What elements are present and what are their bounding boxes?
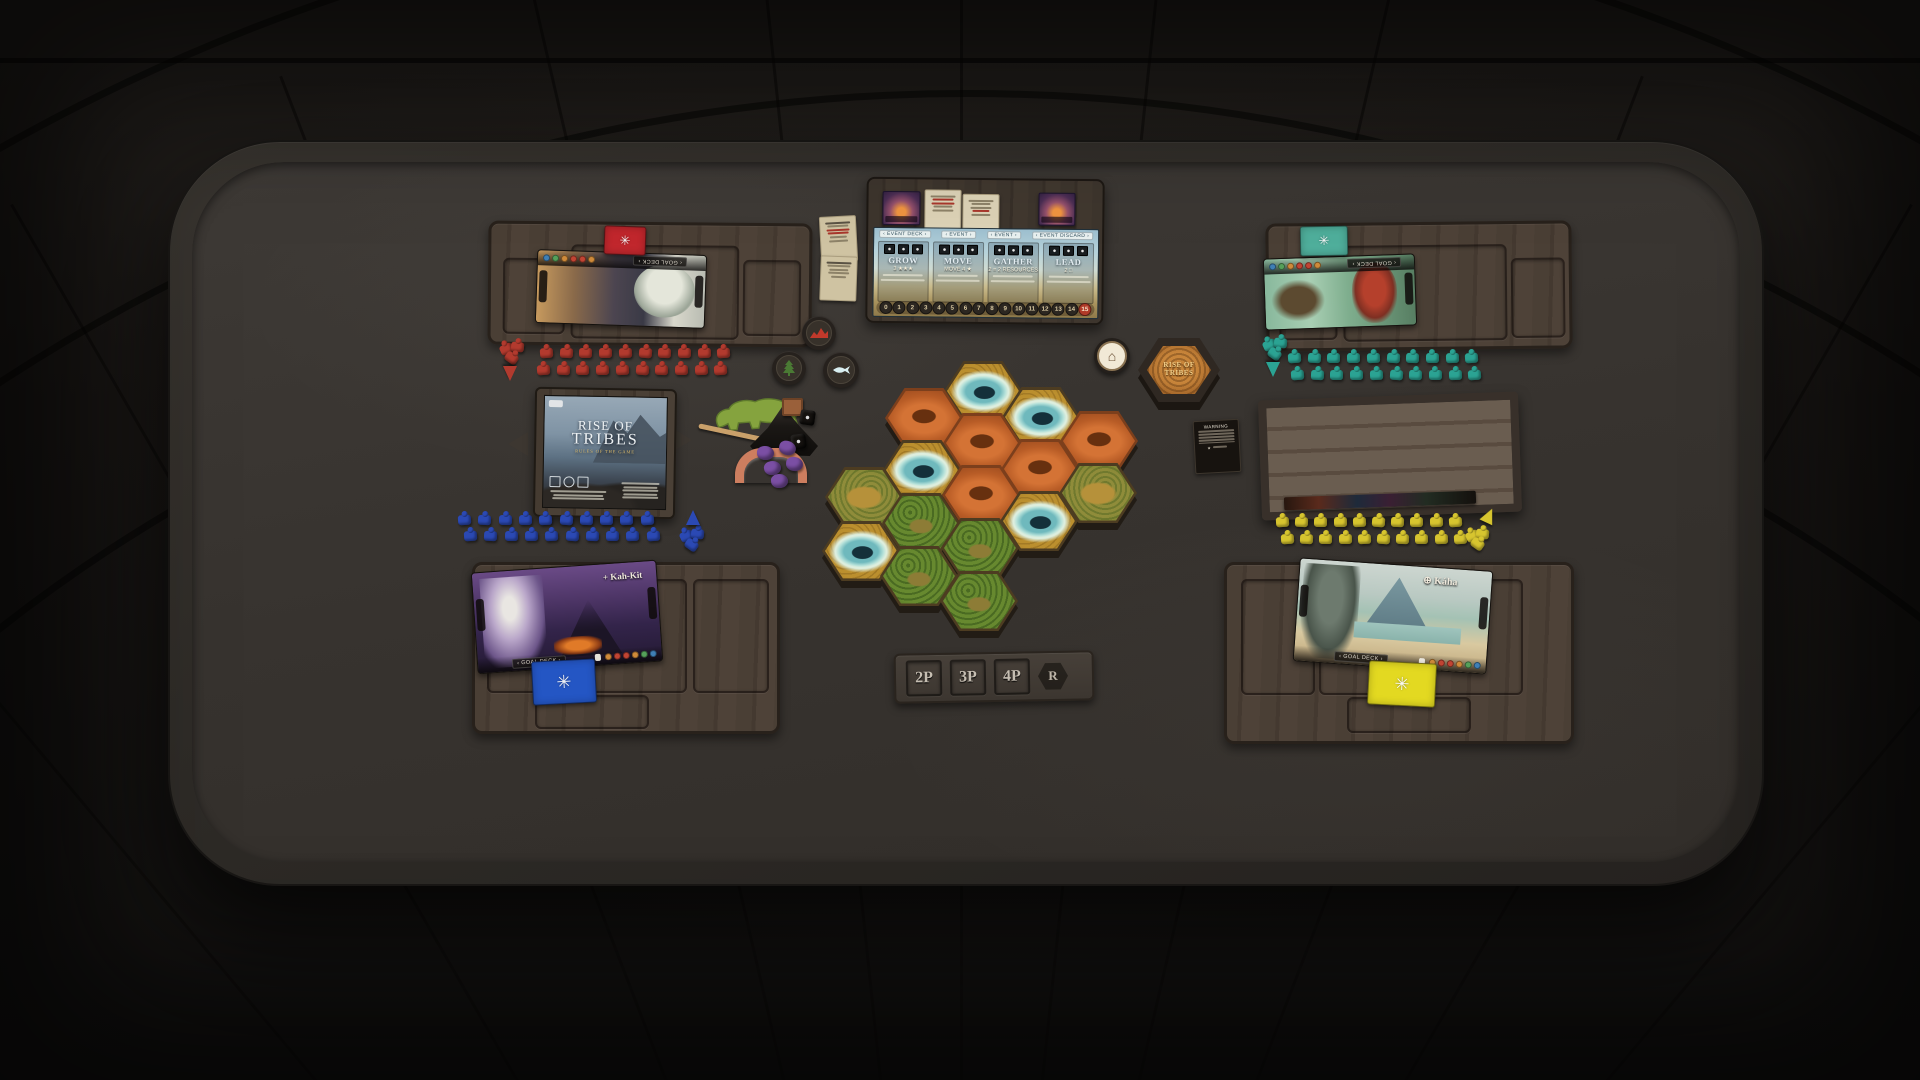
meeple-red[interactable] <box>619 348 633 359</box>
die-slot[interactable] <box>912 244 923 254</box>
score-marker-blue[interactable] <box>686 510 700 525</box>
score-cell-7: 7 <box>972 302 985 315</box>
meeple-blue[interactable] <box>586 531 599 541</box>
tribe-emblem: ✳ <box>619 232 630 248</box>
score-cell-14: 14 <box>1065 303 1078 316</box>
meeple-red[interactable] <box>596 365 609 375</box>
score-cell-8: 8 <box>985 302 998 315</box>
score-cell-6: 6 <box>959 302 972 315</box>
badge-dot <box>1456 661 1463 668</box>
meeple-blue[interactable] <box>640 515 654 526</box>
meeple-red[interactable] <box>694 365 707 375</box>
tribe-emblem: ✳ <box>1394 673 1410 695</box>
event-slot-labels: ‹ EVENT DECK ›‹ EVENT ›‹ EVENT ›‹ EVENT … <box>874 230 1098 240</box>
setup-plaque: 2P3P4PR <box>894 650 1095 703</box>
meeple-blue[interactable] <box>620 515 633 525</box>
setup-button-4p[interactable]: 4P <box>994 658 1031 695</box>
meeple-red[interactable] <box>616 365 630 376</box>
banner-card-red[interactable]: ✳ <box>604 225 647 255</box>
badge-dot <box>543 254 550 261</box>
score-cell-10: 10 <box>1012 302 1025 315</box>
die-slot[interactable] <box>1022 245 1033 255</box>
meeple-yellow[interactable] <box>1434 534 1447 544</box>
rules-cover-art: RISE OF TRIBES RULES OF THE GAME <box>542 395 668 510</box>
meeple-teal[interactable] <box>1426 353 1439 363</box>
meeple-teal[interactable] <box>1406 353 1419 363</box>
badge-dot <box>1296 262 1303 269</box>
column-detail-line <box>881 279 925 281</box>
meeple-red[interactable] <box>658 348 671 358</box>
die-slots <box>939 245 978 255</box>
die-slots <box>884 244 923 254</box>
meeple-yellow[interactable] <box>1295 517 1309 528</box>
meeple-teal[interactable] <box>1468 370 1482 381</box>
meeple-yellow[interactable] <box>1314 517 1327 527</box>
meeple-red[interactable] <box>678 348 691 358</box>
meeple-yellow[interactable] <box>1448 517 1462 528</box>
event-slot-label-0: ‹ EVENT DECK › <box>879 230 931 239</box>
badge-dot <box>623 652 630 659</box>
meeple-red[interactable] <box>537 365 551 376</box>
badge-dot <box>570 255 577 262</box>
event-slot-label-2: ‹ EVENT › <box>987 231 1021 239</box>
die-slot[interactable] <box>1049 246 1060 256</box>
badge-dot <box>579 256 586 263</box>
board-tab <box>694 276 703 308</box>
die-slot[interactable] <box>967 245 978 255</box>
die-slots <box>1049 246 1088 256</box>
meeple-blue[interactable] <box>484 531 498 542</box>
resource-token-fish[interactable] <box>823 352 859 388</box>
meeple-yellow[interactable] <box>1391 517 1404 527</box>
badge-dot <box>552 255 559 262</box>
meeple-teal[interactable] <box>1307 353 1321 364</box>
score-cell-2: 2 <box>906 301 919 314</box>
badge-dot <box>641 650 648 657</box>
page-prev-arrow[interactable] <box>508 432 528 456</box>
meeple-yellow[interactable] <box>1358 534 1372 545</box>
meeple-blue[interactable] <box>478 515 492 526</box>
meeple-yellow[interactable] <box>1300 534 1314 545</box>
meeple-teal[interactable] <box>1429 370 1442 380</box>
meeple-blue[interactable] <box>458 515 472 526</box>
tribe-art-foliage <box>1271 279 1326 323</box>
goal-deck-pill: ‹ GOAL DECK › <box>1347 257 1401 269</box>
action-columns: GROW3 ★★★MOVEMOVE 4 ★GATHER2 = 2 RESOURC… <box>873 241 1098 304</box>
meeple-red[interactable] <box>714 365 728 376</box>
setup-button-3p[interactable]: 3P <box>950 659 987 696</box>
event-card[interactable] <box>1038 193 1075 226</box>
meeple-blue[interactable] <box>565 531 579 542</box>
meeple-teal[interactable] <box>1347 353 1360 363</box>
badge-dot <box>614 652 621 659</box>
purple-resource-piece[interactable] <box>757 446 774 460</box>
badge-dot <box>1269 263 1276 270</box>
meeple-yellow[interactable] <box>1281 534 1295 545</box>
board-tab <box>538 270 547 302</box>
column-detail-line <box>1046 280 1090 282</box>
resource-token-tree[interactable] <box>772 351 806 385</box>
meeple-teal[interactable] <box>1386 353 1400 364</box>
meeple-yellow[interactable] <box>1276 517 1290 528</box>
badge-row <box>1269 262 1321 271</box>
meeple-yellow[interactable] <box>1372 517 1386 528</box>
event-card[interactable] <box>882 191 920 225</box>
meeple-blue[interactable] <box>505 531 518 541</box>
column-title: MOVE <box>944 256 973 266</box>
meeple-teal[interactable] <box>1409 370 1422 380</box>
meeple-teal[interactable] <box>1330 370 1343 380</box>
meeple-teal[interactable] <box>1291 370 1305 381</box>
black-die[interactable] <box>799 409 816 426</box>
badge-dot <box>1438 659 1445 666</box>
meeple-red[interactable] <box>540 348 554 359</box>
badge-row <box>543 254 595 263</box>
meeple-red[interactable] <box>638 348 652 359</box>
mat-slot <box>1511 257 1566 338</box>
tribe-name: + Kah-Kit <box>603 570 643 583</box>
column-detail-line <box>1048 275 1088 277</box>
meeple-red[interactable] <box>675 365 688 375</box>
meeple-blue[interactable] <box>626 531 639 541</box>
die-slot[interactable] <box>898 244 909 254</box>
badge-dot <box>1474 662 1481 669</box>
column-title: LEAD <box>1056 257 1082 267</box>
badge-dot <box>650 650 657 657</box>
action-column-move: MOVEMOVE 4 ★ <box>932 241 983 303</box>
action-column-gather: GATHER2 = 2 RESOURCES <box>987 242 1039 304</box>
column-value: 3 ★★★ <box>893 266 913 272</box>
goal-card[interactable] <box>819 255 858 301</box>
badge-dot <box>1465 661 1472 668</box>
tribe-emblem: ✳ <box>1318 233 1329 249</box>
meeple-teal[interactable] <box>1448 370 1461 380</box>
meeple-red[interactable] <box>599 348 612 358</box>
meeple-red[interactable] <box>576 365 589 375</box>
board-tab <box>647 587 657 619</box>
badge-dot <box>588 256 595 263</box>
tribe-art-sea <box>1353 621 1461 645</box>
column-value: MOVE 4 ★ <box>944 267 972 273</box>
column-value: 2 = 2 RESOURCES <box>988 267 1038 274</box>
badge-dot <box>1278 263 1285 270</box>
score-cell-3: 3 <box>919 301 932 314</box>
fish-icon <box>827 356 855 384</box>
publisher-logo <box>549 400 563 407</box>
game-scene: ‹ GOAL DECK › ‹ GOAL DECK › + Kah-Kit ‹ … <box>0 0 1920 1080</box>
tribe-board-yellow[interactable]: ⊕ Káha ‹ GOAL DECK › <box>1293 557 1494 674</box>
score-cell-15: 15 <box>1078 303 1091 316</box>
score-cell-4: 4 <box>932 301 945 314</box>
badge-dot <box>605 653 612 660</box>
meeple-blue[interactable] <box>580 515 593 525</box>
score-marker-teal[interactable] <box>1266 362 1280 377</box>
meeple-blue[interactable] <box>545 531 559 542</box>
meeple-blue[interactable] <box>646 531 660 542</box>
score-cell-13: 13 <box>1052 303 1065 316</box>
action-column-lead: LEAD2 □ <box>1043 243 1094 305</box>
meeple-teal[interactable] <box>1288 353 1302 364</box>
die-slot[interactable] <box>1063 246 1074 256</box>
cover-info-block <box>549 476 607 502</box>
column-detail-line <box>938 274 978 276</box>
meeple-blue[interactable] <box>606 531 619 541</box>
column-title: GATHER <box>994 256 1033 266</box>
die-slot[interactable] <box>994 245 1005 255</box>
meeple-blue[interactable] <box>559 515 573 526</box>
die-slot[interactable] <box>1077 246 1088 256</box>
hex-tile-art <box>943 574 1015 629</box>
meeple-blue[interactable] <box>600 515 613 525</box>
score-cell-5: 5 <box>946 302 959 315</box>
die-slot[interactable] <box>953 245 964 255</box>
score-marker-red[interactable] <box>503 366 517 381</box>
board-tab <box>1404 272 1413 304</box>
meeple-teal[interactable] <box>1367 353 1381 364</box>
meeple-teal[interactable] <box>1310 370 1324 381</box>
meeple-icon <box>595 654 601 661</box>
die-slot[interactable] <box>1008 245 1019 255</box>
meeple-yellow[interactable] <box>1396 534 1409 544</box>
score-track: 0123456789101112131415 <box>876 301 1094 316</box>
meeple-yellow[interactable] <box>1415 534 1428 544</box>
goal-deck-pill: ‹ GOAL DECK › <box>633 256 687 268</box>
score-cell-9: 9 <box>999 302 1012 315</box>
meeple-yellow[interactable] <box>1353 517 1367 528</box>
rules-title: RISE OF TRIBES RULES OF THE GAME <box>544 418 667 456</box>
badge-dot <box>632 651 639 658</box>
column-detail-line <box>991 280 1035 282</box>
tribe-name: ⊕ Káha <box>1423 575 1458 588</box>
setup-button-2p[interactable]: 2P <box>906 660 943 697</box>
meeple-red[interactable] <box>635 365 649 376</box>
badge-dot <box>1287 263 1294 270</box>
meeple-yellow[interactable] <box>1339 534 1352 544</box>
meeple-blue[interactable] <box>499 515 512 525</box>
mat-slot <box>693 579 769 693</box>
cover-toc <box>621 481 659 501</box>
meeple-blue[interactable] <box>519 515 532 525</box>
badge-dot <box>1314 262 1321 269</box>
meeple-teal[interactable] <box>1389 370 1403 381</box>
action-track-board: ‹ EVENT DECK ›‹ EVENT ›‹ EVENT ›‹ EVENT … <box>872 227 1099 319</box>
action-column-grow: GROW3 ★★★ <box>877 241 928 303</box>
column-detail-line <box>883 274 923 276</box>
tribe-emblem: ✳ <box>556 671 572 693</box>
column-detail-line <box>936 279 980 281</box>
meeple-yellow[interactable] <box>1410 517 1423 527</box>
rise-of-tribes-hex-token[interactable]: RISE OF TRIBES <box>1138 338 1220 412</box>
meeple-yellow[interactable] <box>1334 517 1347 527</box>
home-icon: ⌂ <box>1097 341 1127 371</box>
banner-card-blue[interactable]: ✳ <box>531 658 597 705</box>
meeple-blue[interactable] <box>525 531 538 541</box>
meeple-red[interactable] <box>556 365 570 376</box>
resource-token-mountain[interactable] <box>802 316 836 350</box>
badge-dot <box>1447 660 1454 667</box>
column-detail-line <box>993 275 1033 277</box>
board-tab <box>1478 597 1488 629</box>
column-value: 2 □ <box>1064 268 1072 274</box>
tribe-board-blue[interactable]: + Kah-Kit ‹ GOAL DECK › <box>471 560 664 675</box>
meeple-red[interactable] <box>697 348 710 358</box>
tribe-art-dragon <box>633 264 695 319</box>
die-slot[interactable] <box>939 245 950 255</box>
banner-card-yellow[interactable]: ✳ <box>1367 660 1437 707</box>
score-cell-12: 12 <box>1039 303 1052 316</box>
meeple-red[interactable] <box>559 348 573 359</box>
meeple-teal[interactable] <box>1327 353 1340 363</box>
tribe-board-teal[interactable]: ‹ GOAL DECK › <box>1263 253 1417 330</box>
badge-dot <box>1305 262 1312 269</box>
meeple-red[interactable] <box>717 348 731 359</box>
event-slot-label-3: ‹ EVENT DISCARD › <box>1032 231 1093 240</box>
meeple-yellow[interactable] <box>1429 517 1442 527</box>
meeple-yellow[interactable] <box>1377 534 1391 545</box>
main-action-board[interactable]: ‹ EVENT DECK ›‹ EVENT ›‹ EVENT ›‹ EVENT … <box>865 177 1105 325</box>
hex-tile-forest[interactable] <box>940 571 1018 638</box>
tree-icon <box>776 355 802 381</box>
meeple-yellow[interactable] <box>1319 534 1332 544</box>
meeple-blue[interactable] <box>539 515 553 526</box>
meeple-teal[interactable] <box>1445 353 1458 363</box>
meeple-blue[interactable] <box>464 531 478 542</box>
reference-card[interactable] <box>924 189 961 231</box>
meeple-teal[interactable] <box>1350 370 1363 380</box>
meeple-teal[interactable] <box>1465 353 1479 364</box>
die-slots <box>994 245 1033 255</box>
mat-slot <box>743 260 802 337</box>
mountain-icon <box>806 320 832 346</box>
warning-card[interactable]: WARNING ★ <box>1193 419 1242 474</box>
die-slot[interactable] <box>884 244 895 254</box>
badge-dot <box>561 255 568 262</box>
meeple-teal[interactable] <box>1370 370 1384 381</box>
tribe-board-red[interactable]: ‹ GOAL DECK › <box>535 249 707 329</box>
rules-book[interactable]: RISE OF TRIBES RULES OF THE GAME <box>533 387 677 519</box>
score-cell-11: 11 <box>1025 302 1038 315</box>
badge-row <box>595 650 657 661</box>
score-cell-1: 1 <box>893 301 906 314</box>
rules-button[interactable]: R <box>1038 662 1068 690</box>
column-title: GROW <box>888 255 918 265</box>
meeple-red[interactable] <box>579 348 592 358</box>
score-cell-0: 0 <box>879 301 892 314</box>
meeple-red[interactable] <box>655 365 668 375</box>
home-button[interactable]: ⌂ <box>1094 338 1130 374</box>
event-slot-label-1: ‹ EVENT › <box>942 231 976 239</box>
banner-card-teal[interactable]: ✳ <box>1300 226 1349 257</box>
